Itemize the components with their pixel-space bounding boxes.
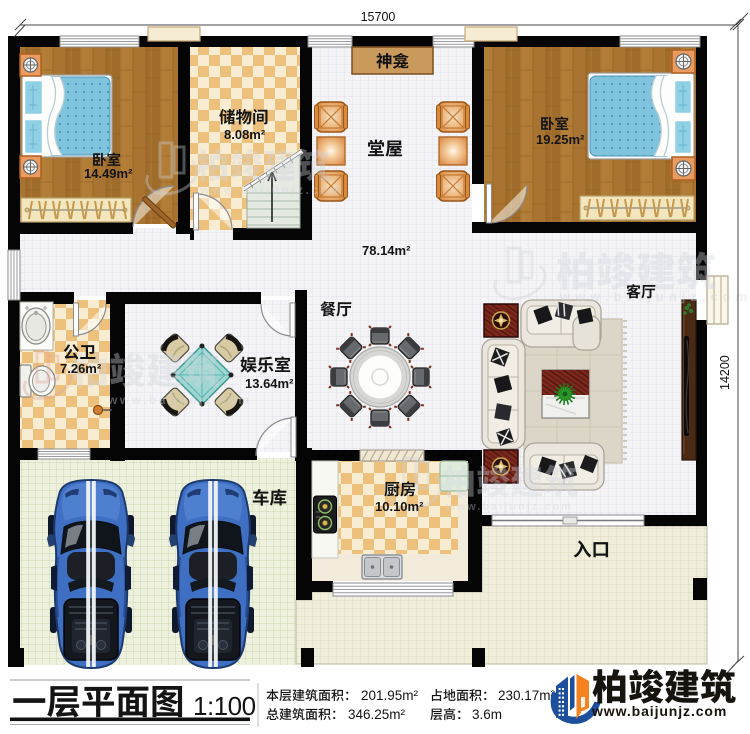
svg-text:201.95m²: 201.95m² — [361, 688, 419, 703]
svg-text:10.10m²: 10.10m² — [375, 499, 424, 514]
svg-text:1:100: 1:100 — [193, 691, 256, 721]
svg-text:13.64m²: 13.64m² — [245, 376, 294, 391]
svg-text:230.17m²: 230.17m² — [498, 688, 556, 703]
svg-text:346.25m²: 346.25m² — [348, 707, 406, 722]
svg-text:www.baijunjz.com: www.baijunjz.com — [445, 501, 573, 513]
svg-text:78.14m²: 78.14m² — [362, 243, 411, 258]
svg-text:www.baijunjz.com: www.baijunjz.com — [107, 393, 252, 407]
svg-text:8.08m²: 8.08m² — [224, 127, 266, 142]
svg-text:7.26m²: 7.26m² — [60, 361, 102, 376]
svg-text:www.baijunjz.com: www.baijunjz.com — [559, 289, 750, 304]
svg-text:www.baijunjz.com: www.baijunjz.com — [591, 703, 727, 719]
svg-text:14200: 14200 — [718, 355, 732, 390]
svg-text:14.49m²: 14.49m² — [84, 166, 133, 181]
svg-text:19.25m²: 19.25m² — [536, 132, 585, 147]
svg-text:15700: 15700 — [361, 10, 396, 24]
svg-text:3.6m: 3.6m — [472, 707, 502, 722]
svg-text:www.baijunjz.com: www.baijunjz.com — [199, 183, 344, 197]
